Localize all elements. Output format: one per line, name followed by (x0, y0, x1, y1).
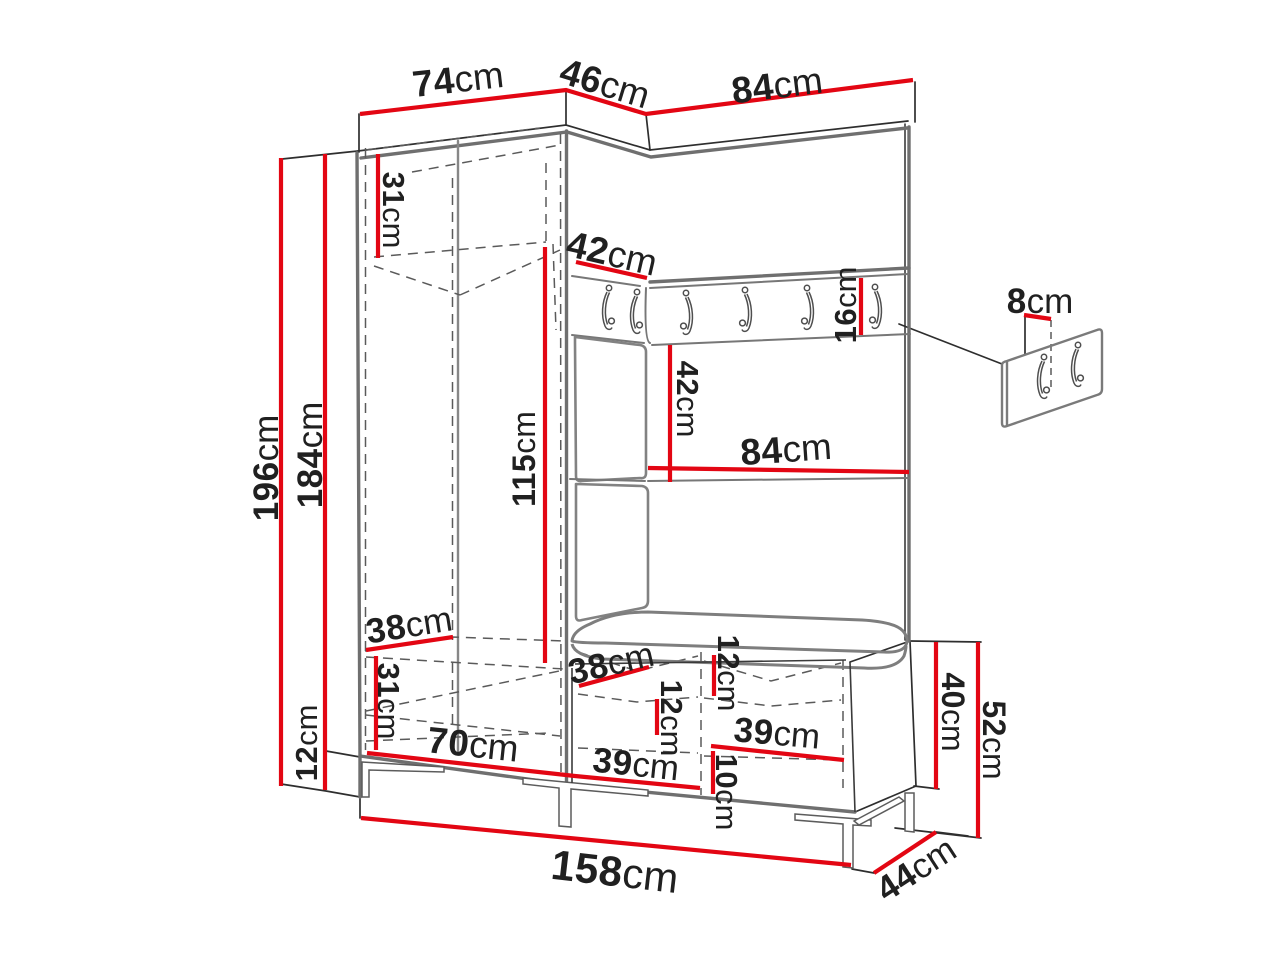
svg-text:31cm: 31cm (372, 663, 407, 740)
svg-text:12cm: 12cm (289, 705, 324, 782)
svg-text:12cm: 12cm (655, 680, 690, 757)
svg-text:196cm: 196cm (247, 415, 286, 522)
svg-text:184cm: 184cm (291, 402, 330, 509)
svg-text:84cm: 84cm (739, 425, 833, 472)
svg-text:52cm: 52cm (976, 700, 1012, 779)
svg-text:40cm: 40cm (935, 672, 971, 751)
svg-text:39cm: 39cm (732, 710, 822, 756)
svg-text:115cm: 115cm (506, 411, 542, 507)
svg-text:16cm: 16cm (828, 267, 863, 344)
svg-text:10cm: 10cm (710, 754, 745, 831)
svg-text:12cm: 12cm (712, 635, 747, 712)
svg-text:42cm: 42cm (671, 361, 706, 438)
svg-text:31cm: 31cm (377, 172, 412, 249)
svg-text:8cm: 8cm (1007, 282, 1074, 321)
